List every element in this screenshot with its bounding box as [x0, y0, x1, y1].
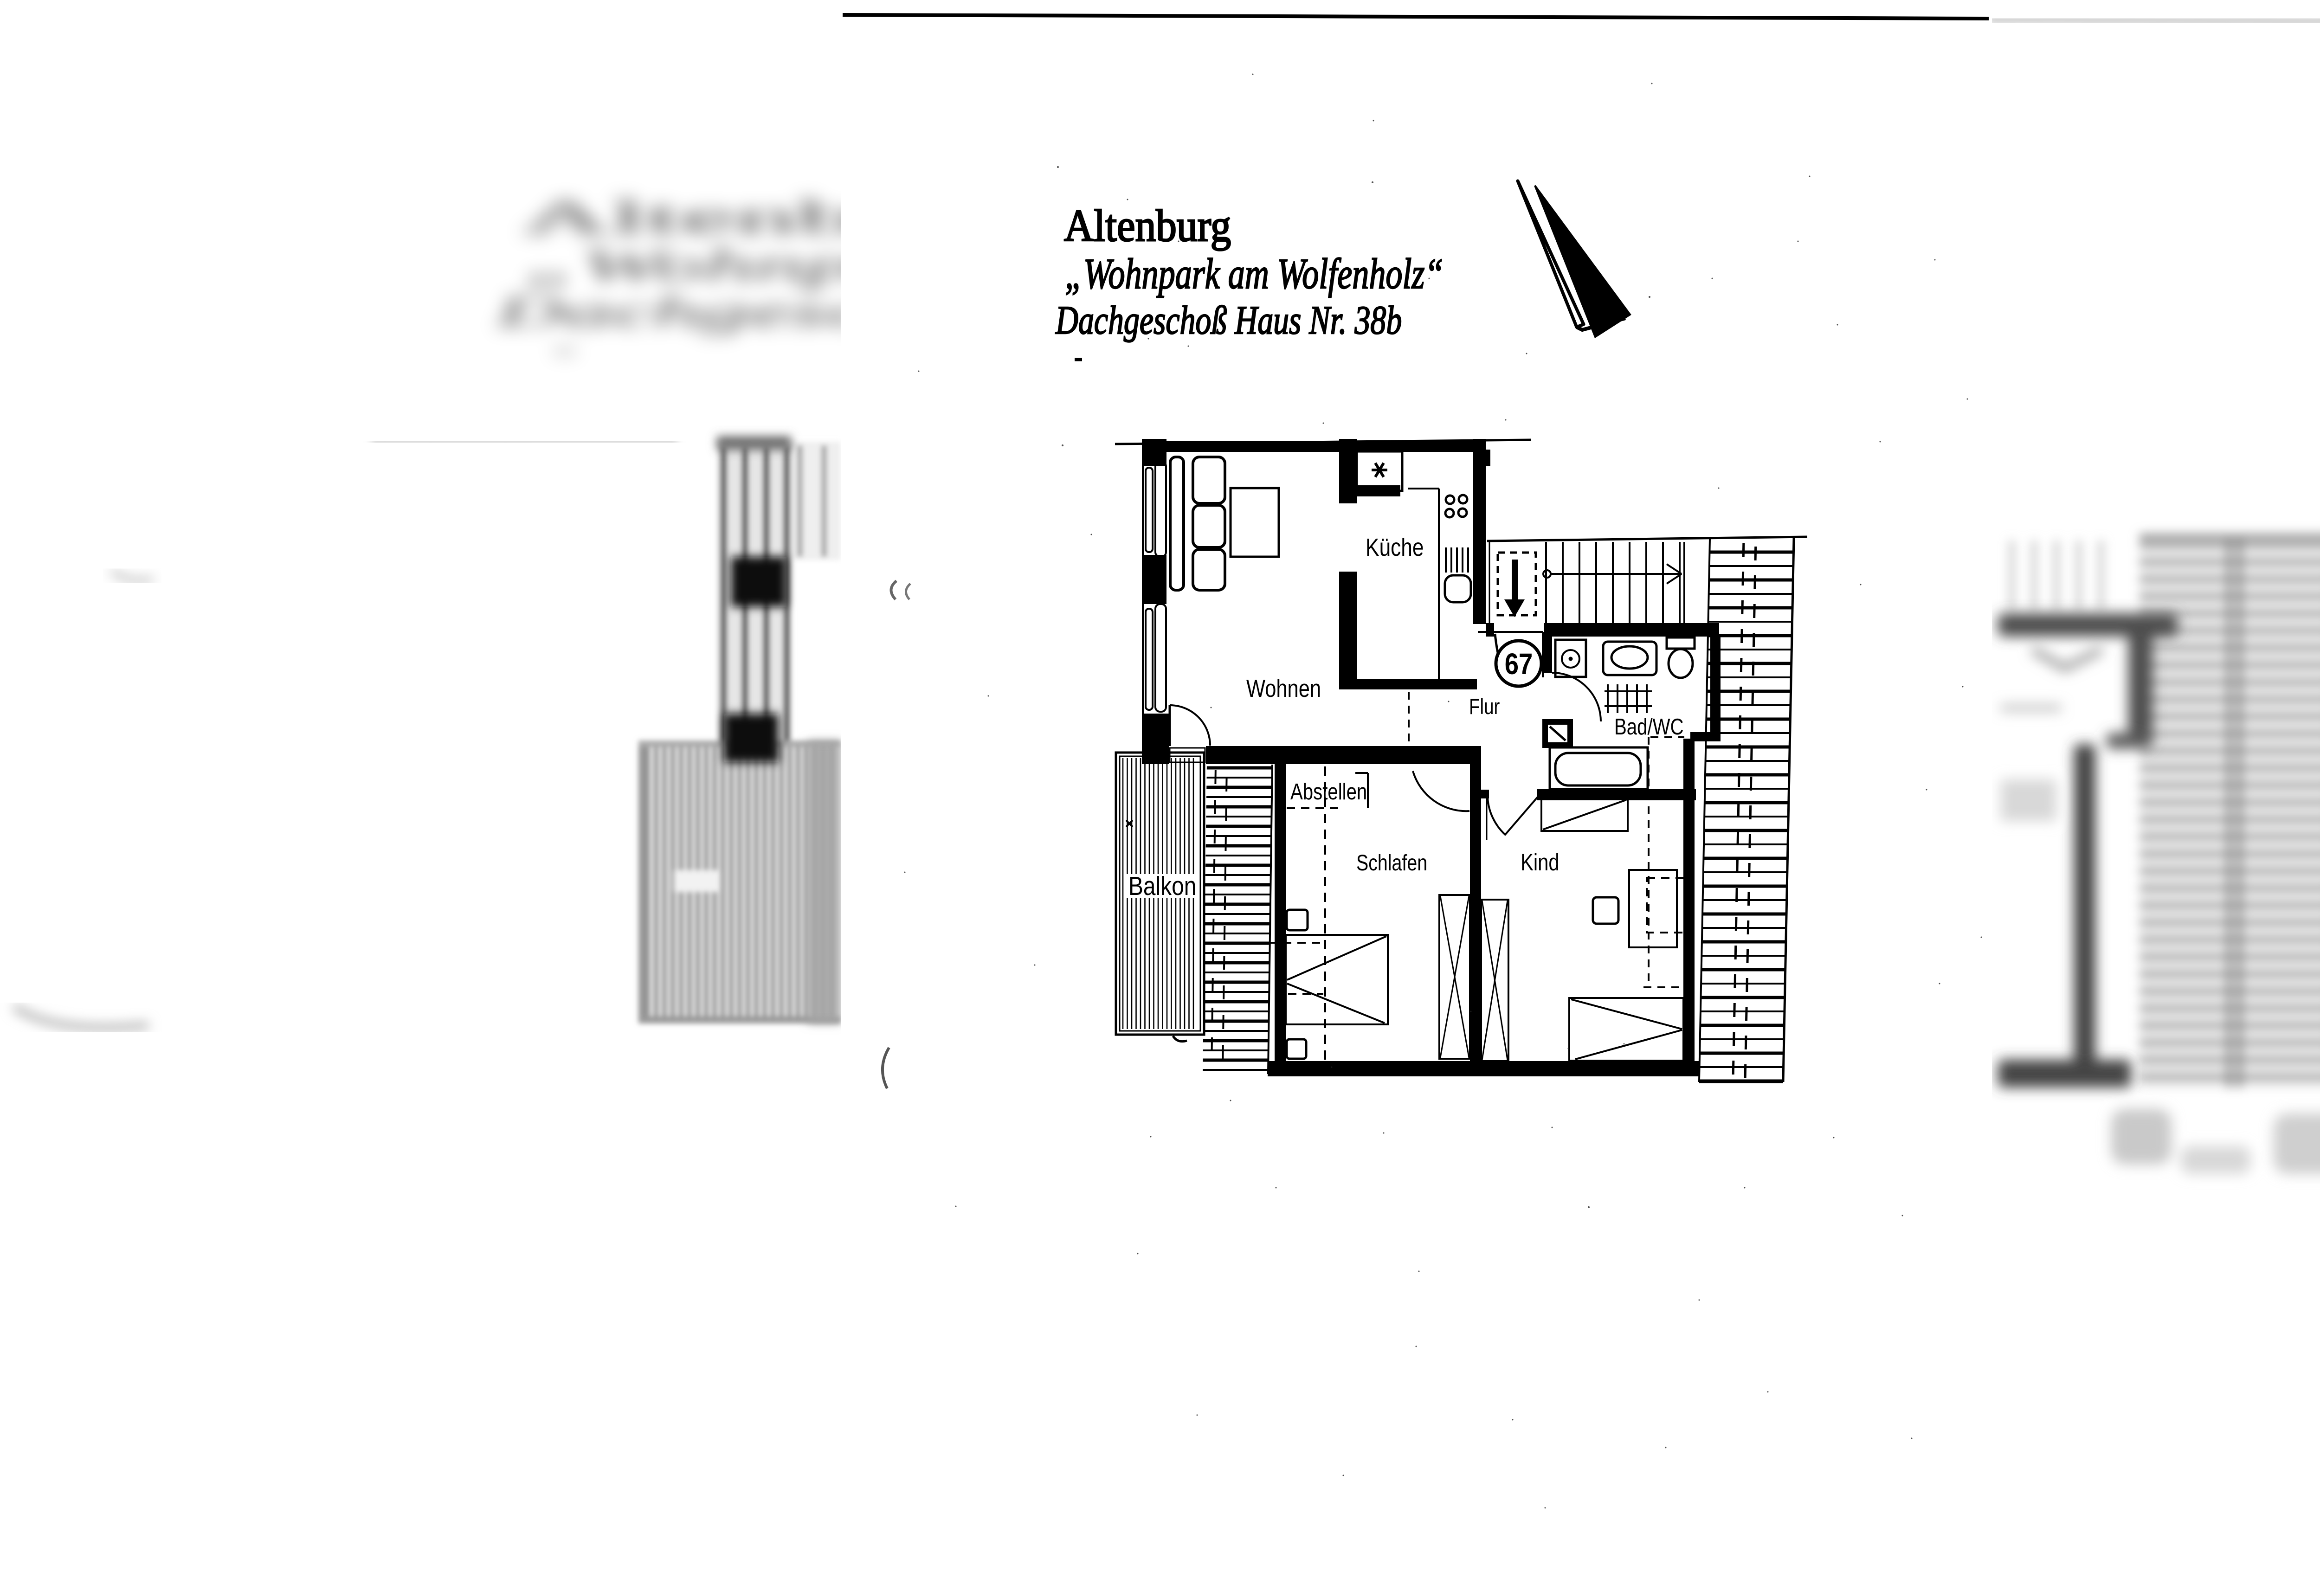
svg-text:Abstellen: Abstellen	[1290, 779, 1367, 804]
svg-text:Wohnen: Wohnen	[1246, 675, 1321, 702]
svg-text:Schlafen: Schlafen	[1356, 850, 1427, 875]
svg-text:Bad/WC: Bad/WC	[1614, 714, 1684, 740]
svg-text:Altenburg: Altenburg	[1064, 201, 1231, 251]
svg-text:Küche: Küche	[1366, 534, 1424, 561]
svg-text:Flur: Flur	[1469, 695, 1500, 719]
svg-text:Kind: Kind	[1521, 849, 1560, 875]
svg-text:67: 67	[1505, 647, 1533, 681]
svg-text:Dachgeschoß Haus Nr. 38b: Dachgeschoß Haus Nr. 38b	[1055, 297, 1402, 342]
svg-text:„Wohnpark am Wolfenholz“: „Wohnpark am Wolfenholz“	[1065, 250, 1444, 297]
svg-text:Balkon: Balkon	[1128, 871, 1196, 901]
